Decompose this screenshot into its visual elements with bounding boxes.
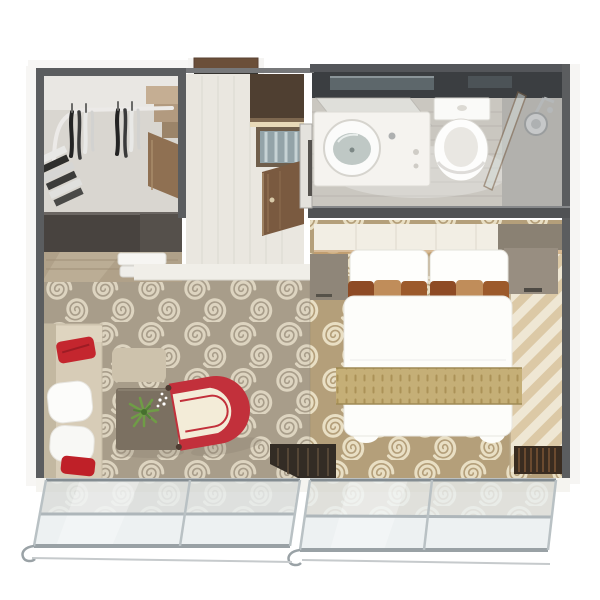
tv-panel [308, 140, 312, 196]
nightstand-left [310, 254, 348, 300]
bathroom [312, 70, 562, 208]
open-wood-door [262, 160, 304, 236]
sofa [44, 324, 102, 482]
sliding-glass-door-right [288, 478, 558, 565]
toilet [434, 98, 490, 181]
shower-floor [502, 86, 562, 208]
nightstand-right [504, 248, 558, 294]
mirror-2 [468, 76, 512, 88]
walk-in-closet [34, 74, 182, 214]
bed-runner [336, 368, 522, 404]
white-cushion-1 [46, 380, 94, 424]
nightstand-right-handle [524, 288, 542, 292]
floorplan-image: Top-down 3D rendering of a suite floor p… [0, 0, 600, 600]
sliding-glass-door-left [22, 478, 304, 561]
bathroom-top-wall [312, 70, 562, 98]
vanity-counter [314, 98, 432, 186]
floorplan-page: Top-down 3D rendering of a suite floor p… [0, 0, 600, 600]
wall-cabinet [250, 74, 304, 127]
floor-sill [134, 264, 310, 280]
outer-wall-right [570, 64, 580, 484]
red-cushion-bottom [60, 455, 96, 476]
closet-dresser [40, 212, 182, 252]
door-handle [270, 198, 275, 203]
mirror [330, 76, 434, 90]
balcony [22, 478, 570, 565]
glass-front-cabinet [256, 127, 304, 167]
nightstand-left-handle [316, 294, 332, 297]
corner-cabinet [498, 224, 562, 250]
duvet [344, 296, 512, 436]
side-table [112, 348, 166, 382]
drape-fringe [514, 446, 562, 474]
faucet [389, 133, 396, 140]
towel-stack [118, 253, 166, 265]
